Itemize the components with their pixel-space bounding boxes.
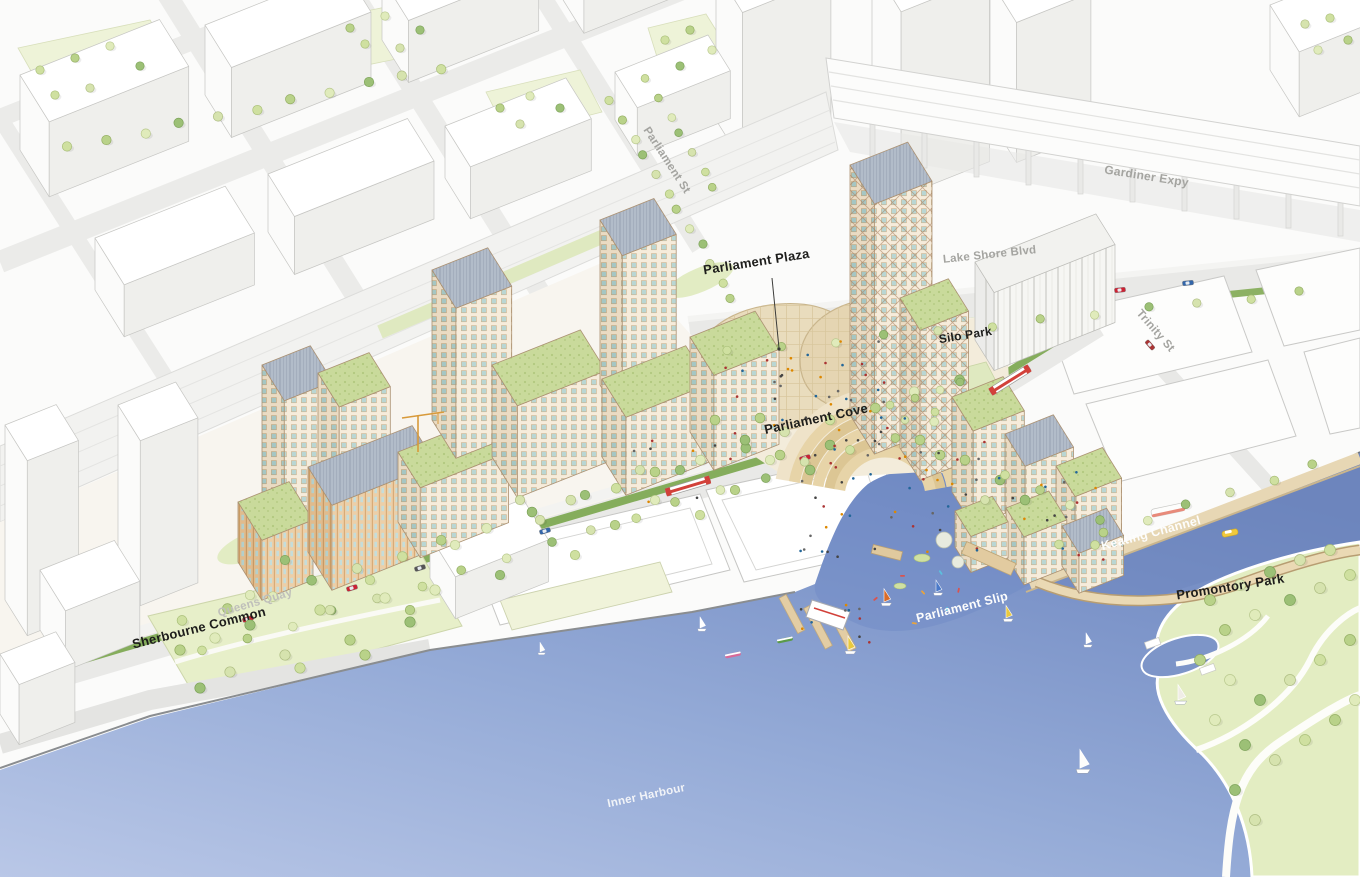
gardiner-pier <box>1286 192 1291 228</box>
kayak <box>900 575 905 577</box>
floating-dome <box>936 532 952 548</box>
slip-islet <box>914 554 930 562</box>
gardiner-pier <box>870 124 875 160</box>
car <box>1114 287 1125 293</box>
gardiner-pier <box>1338 200 1343 236</box>
car <box>1182 280 1193 286</box>
gardiner-pier <box>1234 183 1239 219</box>
timber-midrise <box>690 311 779 470</box>
floating-dome <box>952 556 964 568</box>
gardiner-pier <box>922 132 927 168</box>
gardiner-pier <box>974 141 979 177</box>
slip-islet <box>894 583 906 589</box>
gardiner-pier <box>1078 158 1083 194</box>
masterplan-rendering: Parliament St Gardiner Expy Lake Shore B… <box>0 0 1360 877</box>
gardiner-pier <box>1026 149 1031 185</box>
terraced-building <box>1006 491 1067 585</box>
